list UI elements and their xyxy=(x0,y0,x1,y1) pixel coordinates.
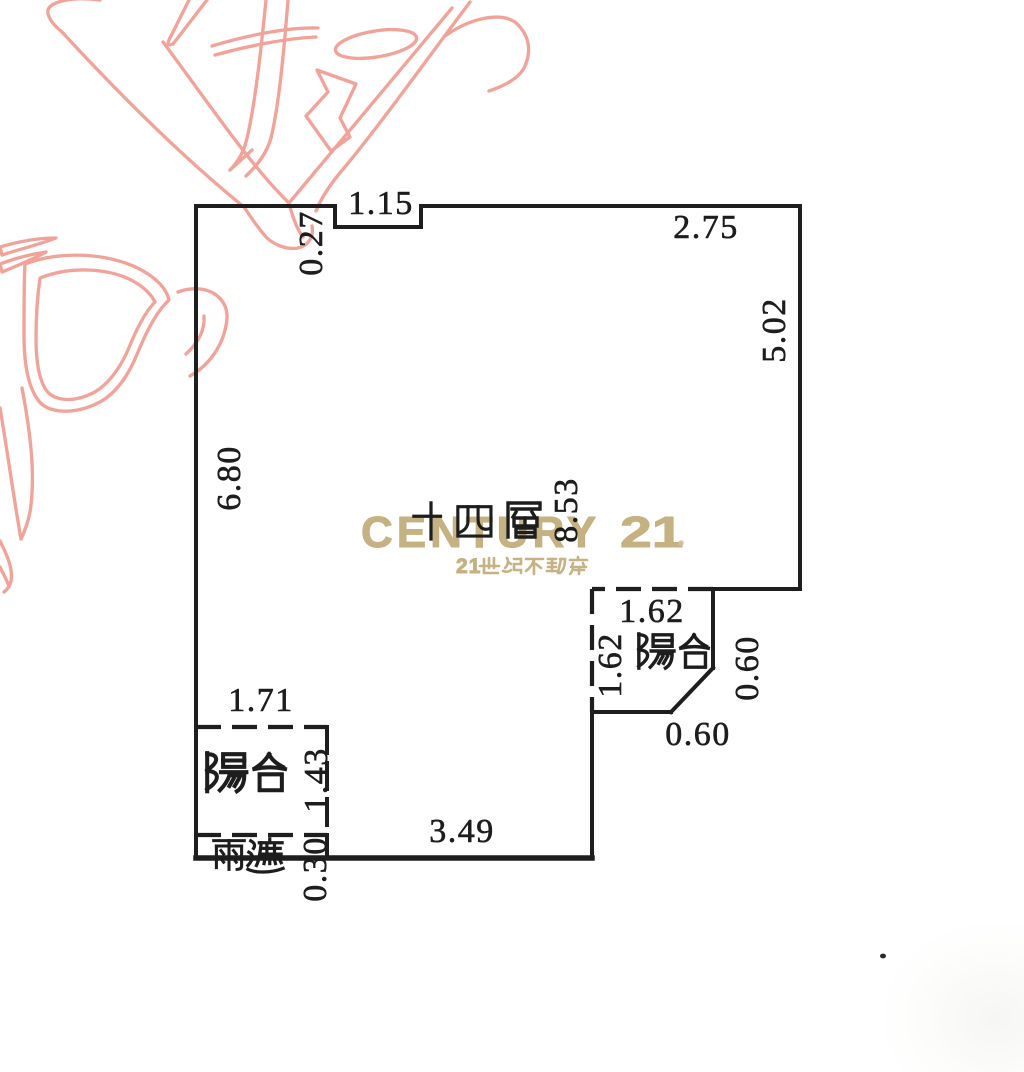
svg-text:21: 21 xyxy=(620,507,684,556)
svg-text:1.62: 1.62 xyxy=(619,593,685,630)
svg-text:21: 21 xyxy=(456,555,481,578)
svg-text:1.15: 1.15 xyxy=(348,185,414,222)
svg-text:8.53: 8.53 xyxy=(548,477,585,543)
svg-text:1.43: 1.43 xyxy=(298,747,335,813)
svg-text:0.60: 0.60 xyxy=(665,716,731,753)
svg-text:5.02: 5.02 xyxy=(756,297,793,363)
svg-text:1.71: 1.71 xyxy=(228,682,294,719)
svg-text:1.62: 1.62 xyxy=(592,632,629,698)
svg-text:6.80: 6.80 xyxy=(211,445,248,511)
svg-text:3.49: 3.49 xyxy=(429,813,495,850)
svg-text:2.75: 2.75 xyxy=(673,209,739,246)
svg-text:0.60: 0.60 xyxy=(729,635,766,701)
svg-text:0.30: 0.30 xyxy=(297,836,334,902)
svg-text:0.27: 0.27 xyxy=(293,210,330,276)
